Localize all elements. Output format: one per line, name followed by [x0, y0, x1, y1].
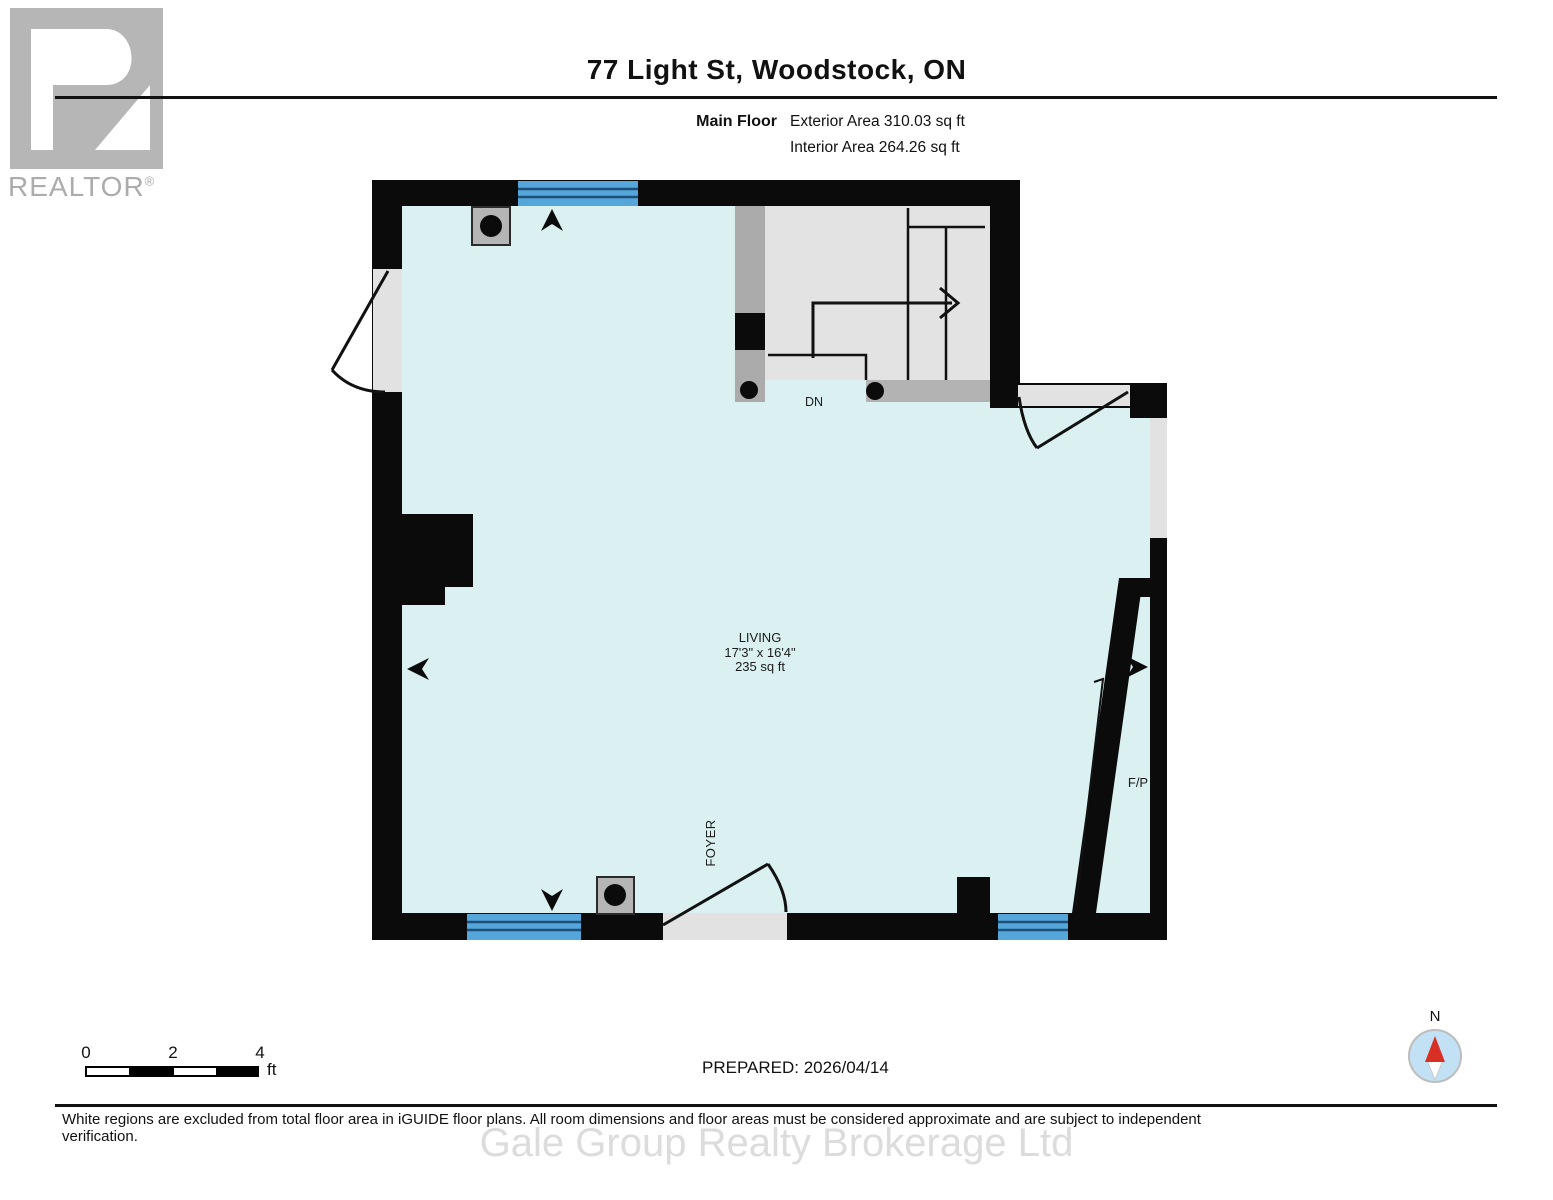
- room-name: LIVING: [660, 631, 860, 646]
- prepared-date: PREPARED: 2026/04/14: [702, 1058, 889, 1078]
- room-dimensions: 17'3" x 16'4": [660, 646, 860, 661]
- disclaimer-text: White regions are excluded from total fl…: [62, 1111, 1262, 1145]
- window-bottom-right: [998, 914, 1068, 940]
- page-title: 77 Light St, Woodstock, ON: [0, 54, 1553, 86]
- realtor-logo-text: REALTOR®: [8, 171, 155, 203]
- registered-mark: ®: [145, 174, 156, 189]
- scale-tick-0: 0: [77, 1043, 95, 1063]
- compass-icon: [1405, 1028, 1465, 1086]
- scale-bar: [85, 1066, 259, 1077]
- floor-plan-drawing: [320, 180, 1167, 940]
- scale-tick-2: 2: [164, 1043, 182, 1063]
- scale-segment: [172, 1066, 218, 1077]
- scale-segment: [218, 1066, 260, 1077]
- staircase: [735, 206, 990, 402]
- floor-plan-page: REALTOR® 77 Light St, Woodstock, ON Main…: [0, 0, 1553, 1200]
- header-divider: [55, 96, 1497, 99]
- interior-area: Interior Area 264.26 sq ft: [790, 135, 965, 161]
- compass-north-label: N: [1405, 1008, 1465, 1025]
- area-summary: Exterior Area 310.03 sq ft Interior Area…: [790, 109, 965, 161]
- wall-pier: [957, 877, 990, 913]
- floor-name-label: Main Floor: [560, 109, 777, 135]
- scale-segment: [131, 1066, 173, 1077]
- foyer-label: FOYER: [680, 813, 740, 873]
- room-area: 235 sq ft: [660, 660, 860, 675]
- window-bottom-left: [467, 914, 581, 940]
- realtor-logo-icon: [10, 8, 163, 169]
- stairs-down-label: DN: [793, 395, 835, 409]
- living-room-label: LIVING 17'3" x 16'4" 235 sq ft: [660, 631, 860, 675]
- exterior-area: Exterior Area 310.03 sq ft: [790, 109, 965, 135]
- scale-unit-label: ft: [267, 1060, 276, 1080]
- window-top: [518, 181, 638, 206]
- scale-segment: [85, 1066, 131, 1077]
- fireplace-label: F/P: [1117, 775, 1159, 790]
- footer-divider: [55, 1104, 1497, 1107]
